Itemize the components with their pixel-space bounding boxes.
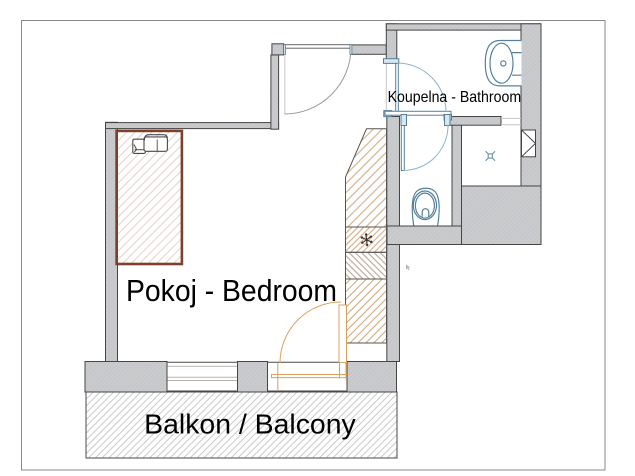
svg-text:Balkon / Balcony: Balkon / Balcony [144, 409, 356, 440]
svg-text:Koupelna - Bathroom: Koupelna - Bathroom [388, 89, 521, 106]
svg-text:Pokoj - Bedroom: Pokoj - Bedroom [126, 275, 337, 308]
